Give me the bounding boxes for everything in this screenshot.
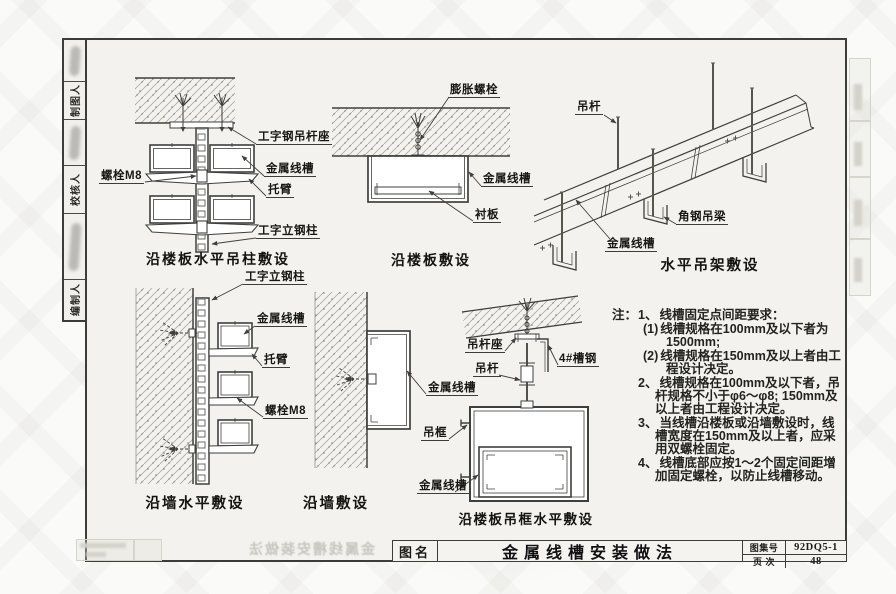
d1-caption: 沿楼板水平吊柱敷设 [144,249,292,269]
bleed-through-smudge [854,142,862,166]
d2-liner-plate-label: 衬板 [473,209,501,223]
bleed-through-smudge [854,84,862,110]
d5-caption: 沿墙敷设 [301,492,371,513]
bleed-through-smudge [854,258,862,282]
notes-heading: 注： [612,309,637,322]
note-item-4: 4、线槽底部应按1～2个固定间距增加固定螺栓，以防止线槽移动。 [638,457,846,483]
d3-angle-beam-label: 角钢吊梁 [676,211,728,225]
d4-bolt-m8-label: 螺栓M8 [263,405,308,419]
bleed-through-title: 金属线槽安装做法 [230,540,392,558]
d4-steel-column-label: 工字立钢柱 [243,271,307,285]
notes-body: 1、线槽固定点间距要求： (1)线槽规格在100mm及以下者为1500mm; (… [638,309,846,483]
page-number-value: 48 [786,555,846,568]
d2-expansion-bolt-label: 膨胀螺栓 [448,84,500,98]
atlas-number-label: 图集号 [743,541,786,554]
drawing-title: 金属线槽安装做法 [438,541,742,561]
sidebar-signature-cell [64,120,85,166]
notes-section: 注： 1、线槽固定点间距要求： (1)线槽规格在100mm及以下者为1500mm… [612,309,846,484]
d1-bolt-m8-label: 螺栓M8 [99,170,144,184]
signature-smudge [68,222,81,271]
signature-sidebar: 制图人 校核人 编制人 [62,38,85,322]
note-item-1-2: (2)线槽规格在150mm及以上者由工程设计决定。 [643,350,846,376]
d1-bracket-arm-label: 托臂 [266,184,294,198]
d1-steel-column-label: 工字立钢柱 [256,225,320,239]
checker-label: 校核人 [67,173,82,206]
d2-caption: 沿楼板敷设 [386,250,476,270]
d4-bracket-arm-label: 托臂 [262,354,290,368]
drafter-label: 制图人 [67,84,82,117]
atlas-number-value: 92DQ5-1 [786,541,846,554]
d6-hanger-rod-label: 吊杆 [473,363,501,377]
d4-tray-label: 金属线槽 [255,313,307,327]
d3-caption: 水平吊架敷设 [660,254,760,275]
d4-caption: 沿墙水平敷设 [144,492,246,513]
note-item-3: 3、当线槽沿楼板或沿墙敷设时，线槽宽度在150mm及以上者，应采用双螺栓固定。 [638,417,846,457]
compiler-label: 编制人 [67,283,82,316]
note-item-1: 1、线槽固定点间距要求： [638,309,846,322]
page-row: 页 次 48 [743,555,846,568]
drawing-name-label: 图名 [393,541,438,561]
bleed-through-smudge [854,200,862,226]
d6-caption: 沿楼板吊框水平敷设 [455,508,597,528]
note-item-2: 2、线槽规格在100mm及以下者，吊杆规格不小于φ6～φ8; 150mm及以上者… [638,377,846,417]
sidebar-role-compiler: 编制人 [64,280,85,318]
bleed-through-smudge [80,543,126,548]
d3-hanger-rod-label: 吊杆 [575,101,603,115]
atlas-page-block: 图集号 92DQ5-1 页 次 48 [742,541,846,561]
atlas-row: 图集号 92DQ5-1 [743,541,846,555]
note-item-1-1: (1)线槽规格在100mm及以下者为1500mm; [643,323,846,349]
d1-hanger-seat-label: 工字钢吊杆座 [256,131,332,145]
sidebar-signature-cell [64,40,85,82]
d6-tray-bottom-label: 金属线槽 [417,480,469,494]
d2-tray-label: 金属线槽 [481,173,533,187]
d6-hanger-frame-label: 吊框 [421,427,449,441]
page-number-label: 页 次 [743,555,786,568]
signature-smudge [68,45,80,76]
scanned-atlas-page: { "sidebar": { "cells": [ {"label": "制图人… [0,0,896,594]
sidebar-role-checker: 校核人 [64,166,85,214]
sidebar-signature-cell [64,214,85,280]
d1-tray-label: 金属线槽 [264,163,316,177]
sidebar-role-drafter: 制图人 [64,82,85,120]
d5-tray-label: 金属线槽 [426,382,478,396]
d3-tray-label: 金属线槽 [605,238,657,252]
bleed-through-box [134,539,162,561]
bleed-through-smudge [86,552,106,557]
title-block: 图名 金属线槽安装做法 图集号 92DQ5-1 页 次 48 [392,540,847,562]
d6-rod-seat-label: 吊杆座 [465,339,505,353]
signature-smudge [68,125,80,160]
d6-channel-steel-label: 4#槽钢 [557,353,599,367]
